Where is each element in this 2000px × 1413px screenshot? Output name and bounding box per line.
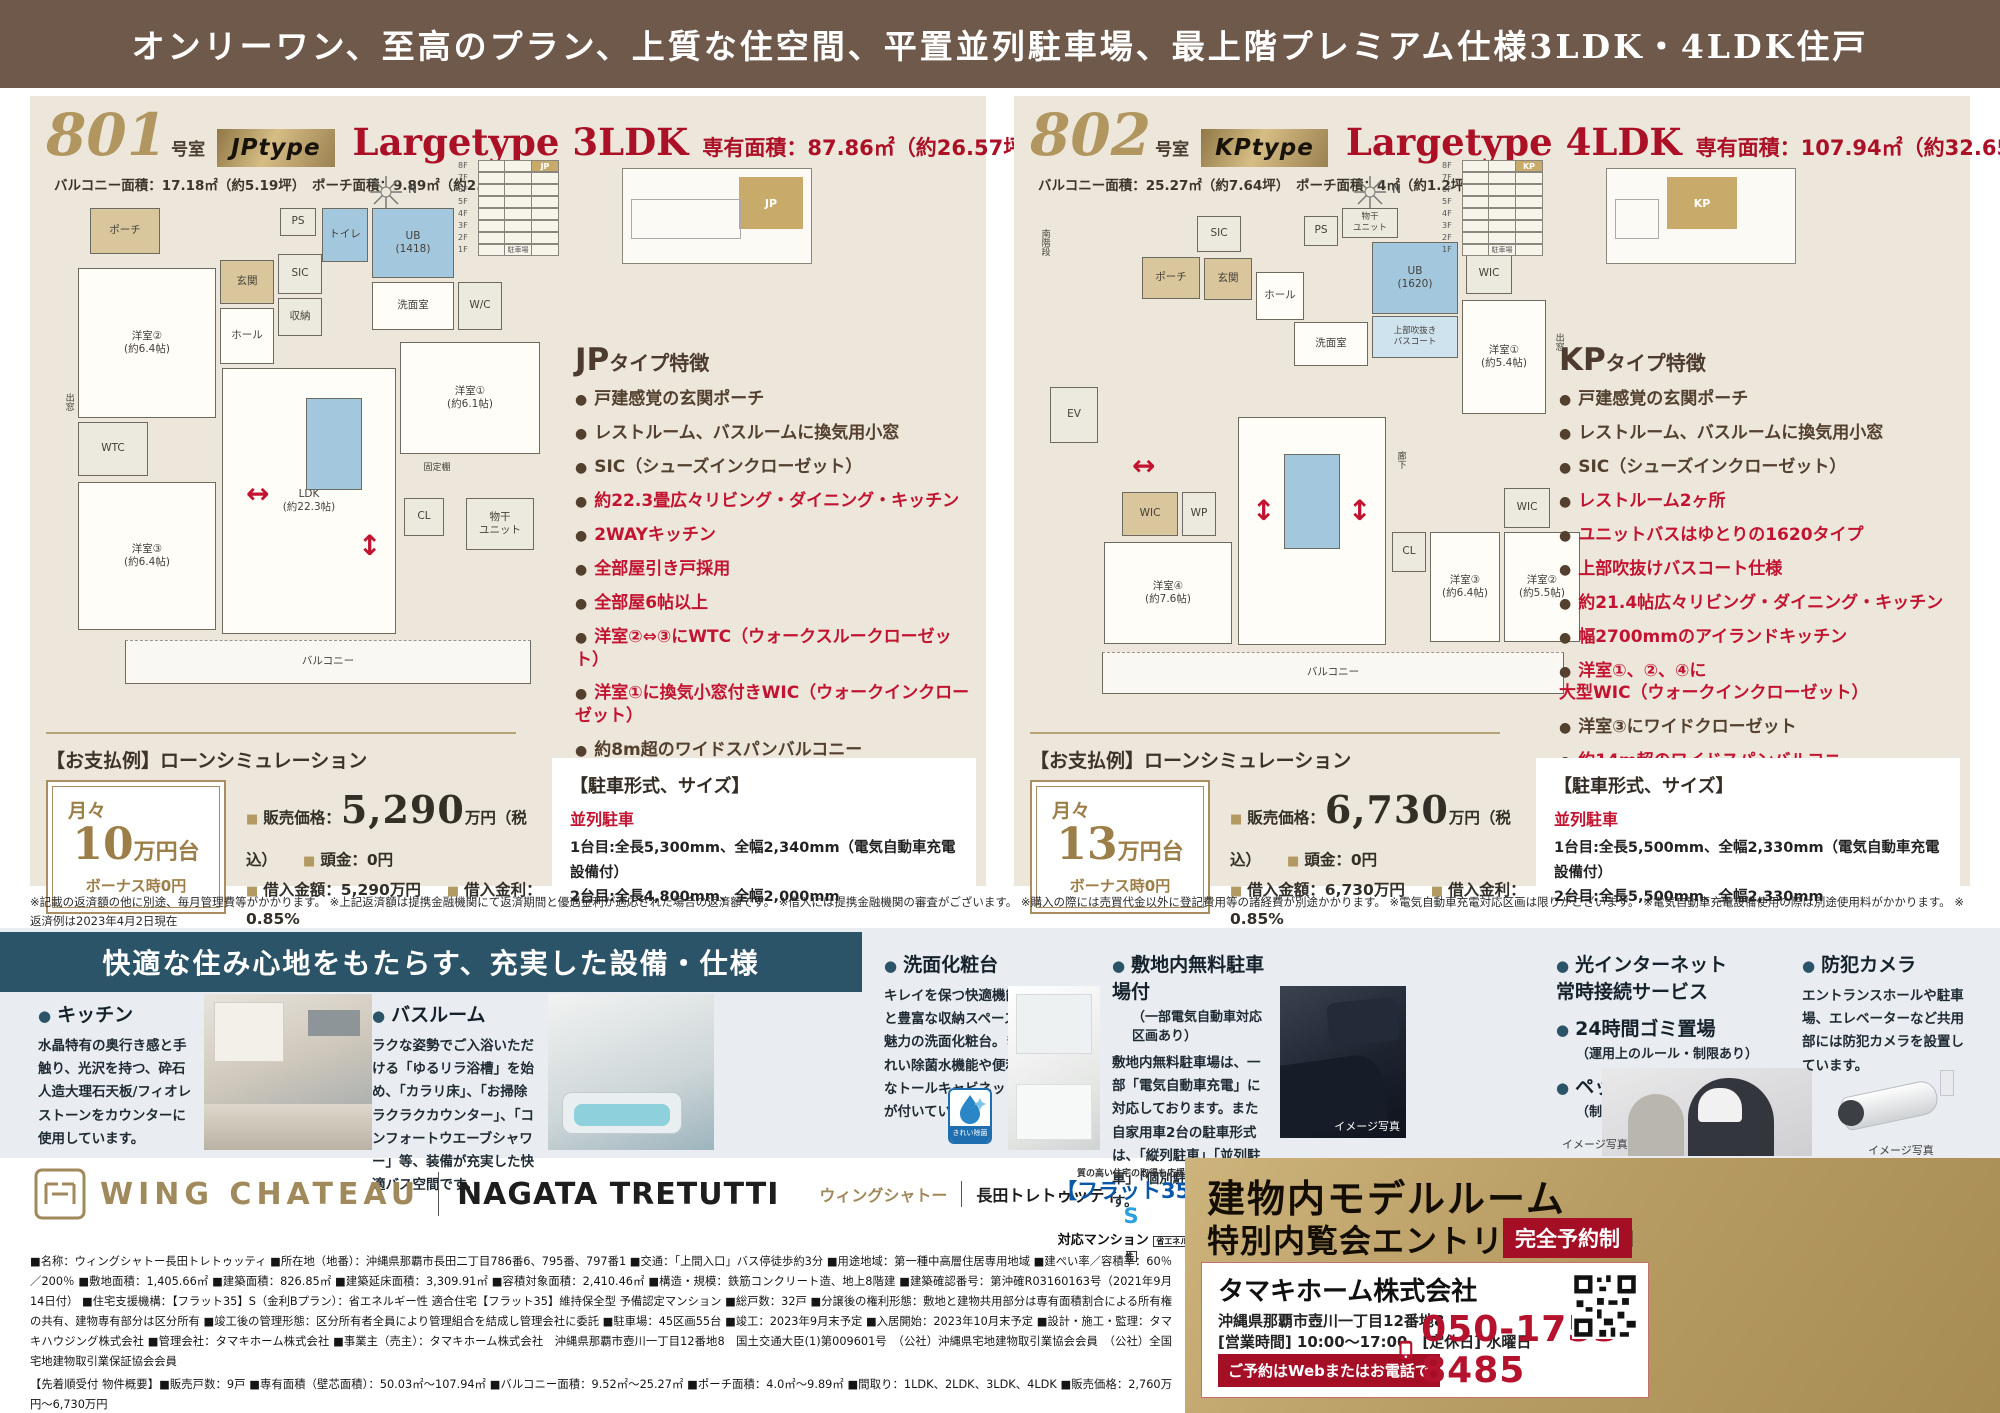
room: WIC xyxy=(1122,492,1178,536)
brand-wing-chateau-ja: ウィングシャトー xyxy=(819,1182,947,1206)
feature-item: ユニットバスはゆとりの1620タイプ xyxy=(1559,524,1961,547)
room: 収納 xyxy=(278,298,322,336)
unit-panel-802: 802 号室 KPtype Largetype 4LDK 専有面積：107.94… xyxy=(1014,96,1970,886)
kitchen-island xyxy=(306,398,362,490)
site-plan: JP xyxy=(622,168,812,264)
unit-floor-highlight: JP xyxy=(532,160,559,172)
divider xyxy=(438,1172,439,1216)
type-heading-en: JP xyxy=(575,342,609,378)
legal-text: ■名称：ウィングシャトー長田トレトゥッティ ■所在地（地番）：沖縄県那覇市長田二… xyxy=(30,1252,1172,1413)
model-room-box: 建物内モデルルーム 特別内覧会エントリー受付中 完全予約制 タマキホーム株式会社… xyxy=(1185,1158,2000,1413)
parking-photo: イメージ写真 xyxy=(1280,986,1406,1138)
divider xyxy=(961,1181,962,1207)
room: 洋室③ (約6.4帖) xyxy=(78,482,216,630)
room: 南階段 xyxy=(1036,212,1052,272)
kitchen-island xyxy=(1284,454,1340,549)
room: ホール xyxy=(220,308,274,364)
red-arrow-icon xyxy=(246,480,269,508)
headline-text: オンリーワン、至高のプラン、上質な住空間、平置並列駐車場、最上階プレミアム仕様3… xyxy=(132,20,1869,68)
feature-item: 洋室③にワイドクローゼット xyxy=(1559,716,1961,739)
unit-subarea: バルコニー面積：17.18㎡（約5.19坪） ポーチ面積：9.89㎡（約2.99… xyxy=(54,174,527,194)
feature-item: 上部吹抜けバスコート仕様 xyxy=(1559,558,1961,581)
feature-item: 戸建感覚の玄関ポーチ xyxy=(1559,388,1961,411)
unit-area: 専有面積：107.94㎡（約32.65坪） xyxy=(1696,132,2000,162)
feature-item: 全部屋引き戸採用 xyxy=(575,558,977,581)
room-number: 801 xyxy=(46,106,167,164)
feature-item: 幅2700mmのアイランドキッチン xyxy=(1559,626,1961,649)
unit-header: 801 号室 JPtype Largetype 3LDK 専有面積：87.86㎡… xyxy=(46,106,1045,167)
room-number-suffix: 号室 xyxy=(1155,135,1189,160)
room: 上部吹抜き バスコート xyxy=(1372,316,1458,358)
parking-floor-label: 駐車場 xyxy=(505,244,532,256)
feature-item: SIC（シューズインクローゼット） xyxy=(575,456,977,479)
feature-item: 約22.3畳広々リビング・ダイニング・キッチン xyxy=(575,490,977,513)
room: CL xyxy=(1392,532,1426,572)
floorplan-802: 南階段 EV ポーチ SIC 玄関 ホール PS 物干 ユニット UB (162… xyxy=(1042,202,1587,697)
loan-heading: 【お支払例】ローンシミュレーション xyxy=(1030,732,1500,773)
room: W/C xyxy=(458,282,502,330)
company-box: タマキホーム株式会社 沖縄県那覇市壺川一丁目12番地8 [営業時間] 10:00… xyxy=(1201,1262,1649,1398)
wing-chateau-logo xyxy=(34,1168,86,1220)
reservation-badge: 完全予約制 xyxy=(1503,1218,1632,1258)
feature-item: 約21.4帖広々リビング・ダイニング・キッチン xyxy=(1559,592,1961,615)
unit-site-highlight: JP xyxy=(739,177,803,229)
room-number-suffix: 号室 xyxy=(171,135,205,160)
kitchen-photo xyxy=(204,994,372,1150)
feature-item: レストルーム、バスルームに換気用小窓 xyxy=(1559,422,1961,445)
room: PS xyxy=(1304,216,1338,246)
red-arrow-icon xyxy=(1252,497,1275,525)
room: 洋室① (約5.4帖) xyxy=(1462,300,1546,414)
equipment-camera: 防犯カメラ エントランスホールや駐車場、エレベーターなど共用部には防犯カメラを設… xyxy=(1802,950,1982,1078)
equipment-section: 快適な住み心地をもたらす、充実した設備・仕様 キッチン 水晶特有の奥行き感と手触… xyxy=(0,928,2000,1158)
pets-caption: イメージ写真 xyxy=(1562,1136,1628,1152)
unit-title: Largetype 3LDK xyxy=(353,120,689,164)
room: WIC xyxy=(1504,488,1550,528)
room: トイレ xyxy=(322,208,368,262)
brand-wing-chateau: WING CHATEAU xyxy=(100,1177,420,1212)
feature-item: 戸建感覚の玄関ポーチ xyxy=(575,388,977,411)
room-number: 802 xyxy=(1030,106,1151,164)
room: UB (1418) xyxy=(372,208,454,278)
parking-info-box: 【駐車形式、サイズ】 並列駐車 1台目:全長5,300mm、全幅2,340mm（… xyxy=(552,758,976,908)
room: WTC xyxy=(78,422,148,476)
room: 玄関 xyxy=(220,260,274,304)
room: ポーチ xyxy=(90,208,160,254)
room: 玄関 xyxy=(1204,258,1252,300)
loan-heading: 【お支払例】ローンシミュレーション xyxy=(46,732,516,773)
feature-item: 洋室①に換気小窓付きWIC（ウォークインクローゼット） xyxy=(575,682,977,728)
feature-item: 洋室①、②、④に 大型WIC（ウォークインクローゼット） xyxy=(1559,660,1961,706)
headline-banner: オンリーワン、至高のプラン、上質な住空間、平置並列駐車場、最上階プレミアム仕様3… xyxy=(0,0,2000,88)
room: WP xyxy=(1182,492,1216,536)
type-heading-en: KP xyxy=(1559,342,1606,378)
type-badge: KPtype xyxy=(1201,129,1328,167)
type-badge: JPtype xyxy=(217,129,334,167)
parking-floor-label: 駐車場 xyxy=(1489,244,1516,256)
type-features: KPタイプ特徴 戸建感覚の玄関ポーチ レストルーム、バスルームに換気用小窓 SI… xyxy=(1559,342,1961,784)
room: 物干 ユニット xyxy=(466,498,534,550)
compass-icon: N xyxy=(368,174,404,214)
equipment-kitchen: キッチン 水晶特有の奥行き感と手触り、光沢を持つ、砕石人造大理石天板/フィオレス… xyxy=(38,1000,198,1151)
vanity-photo xyxy=(1008,986,1100,1150)
flyer-page: オンリーワン、至高のプラン、上質な住空間、平置並列駐車場、最上階プレミアム仕様3… xyxy=(0,0,2000,1413)
unit-panel-801: 801 号室 JPtype Largetype 3LDK 専有面積：87.86㎡… xyxy=(30,96,986,886)
room: 洋室③ (約6.4帖) xyxy=(1430,532,1500,642)
brand-row: WING CHATEAU NAGATA TRETUTTI ウィングシャトー 長田… xyxy=(34,1168,1119,1220)
clean-water-badge: きれい除菌水 xyxy=(948,1088,992,1144)
parking-info-box: 【駐車形式、サイズ】 並列駐車 1台目:全長5,500mm、全幅2,330mm（… xyxy=(1536,758,1960,908)
unit-title: Largetype 4LDK xyxy=(1346,120,1682,164)
unit-header: 802 号室 KPtype Largetype 4LDK 専有面積：107.94… xyxy=(1030,106,2000,167)
pets-photo xyxy=(1602,1068,1812,1156)
floorplan-801: ポーチ PS トイレ UB (1418) 洗面室 W/C SIC 玄関 ホール … xyxy=(70,202,570,697)
room: ポーチ xyxy=(1142,257,1200,299)
room: 洋室② (約6.4帖) xyxy=(78,268,216,418)
flat35-badge: 質の高い住宅の取得を応援 【フラット35】S 対応マンション 省エネルギー性 xyxy=(1056,1166,1206,1263)
room: EV xyxy=(1050,387,1098,443)
unit-area: 専有面積：87.86㎡（約26.57坪） xyxy=(702,132,1045,162)
feature-item: SIC（シューズインクローゼット） xyxy=(1559,456,1961,479)
building-elevation: 8FJP 7F 6F 5F 4F 3F 2F 1F駐車場 xyxy=(458,160,559,256)
building-elevation: 8FKP 7F 6F 5F 4F 3F 2F 1F駐車場 xyxy=(1442,160,1543,256)
unit-subarea: バルコニー面積：25.27㎡（約7.64坪） ポーチ面積：4㎡（約1.2坪） xyxy=(1038,174,1478,194)
camera-caption: イメージ写真 xyxy=(1868,1142,1934,1158)
equipment-heading: 快適な住み心地をもたらす、充実した設備・仕様 xyxy=(0,932,862,992)
balcony: バルコニー xyxy=(125,640,531,684)
feature-item: レストルーム、バスルームに換気用小窓 xyxy=(575,422,977,445)
room: 廊下 xyxy=(1392,430,1408,490)
room: PS xyxy=(280,208,316,236)
compass-icon: N xyxy=(1352,174,1388,214)
room: 洋室④ (約7.6帖) xyxy=(1104,542,1232,644)
balcony: バルコニー xyxy=(1102,652,1564,694)
qr-code xyxy=(1572,1273,1638,1339)
room: 洗面室 xyxy=(372,282,454,330)
red-arrow-icon xyxy=(1348,497,1371,525)
type-heading-ja: タイプ特徴 xyxy=(609,351,709,375)
feature-item: 洋室②⇔③にWTC（ウォークスルークローゼット） xyxy=(575,626,977,672)
phone-icon xyxy=(1398,1335,1415,1365)
type-heading-ja: タイプ特徴 xyxy=(1606,351,1706,375)
room: 洗面室 xyxy=(1294,322,1368,366)
red-arrow-icon xyxy=(358,532,381,560)
room: SIC xyxy=(1197,216,1241,252)
room: 出窓 xyxy=(60,372,76,432)
north-label: N xyxy=(408,182,417,196)
brand-nagata: NAGATA TRETUTTI xyxy=(457,1177,779,1212)
room: SIC xyxy=(278,254,322,294)
model-room-title: 建物内モデルルーム xyxy=(1207,1168,1566,1223)
room: CL xyxy=(404,498,444,536)
room: WIC xyxy=(1466,254,1512,294)
bath-photo xyxy=(548,994,714,1150)
site-plan: KP xyxy=(1606,168,1796,264)
feature-item: 全部屋6帖以上 xyxy=(575,592,977,615)
north-label: N xyxy=(1392,182,1401,196)
unit-floor-highlight: KP xyxy=(1516,160,1543,172)
red-arrow-icon xyxy=(1132,452,1155,480)
type-features: JPタイプ特徴 戸建感覚の玄関ポーチ レストルーム、バスルームに換気用小窓 SI… xyxy=(575,342,977,773)
feature-item: レストルーム2ヶ所 xyxy=(1559,490,1961,513)
feature-item: 2WAYキッチン xyxy=(575,524,977,547)
unit-site-highlight: KP xyxy=(1667,177,1737,229)
room: 固定棚 xyxy=(402,460,472,478)
room: ホール xyxy=(1256,272,1304,320)
room: 洋室① (約6.1帖) xyxy=(400,342,540,454)
camera-photo xyxy=(1836,1070,1964,1140)
